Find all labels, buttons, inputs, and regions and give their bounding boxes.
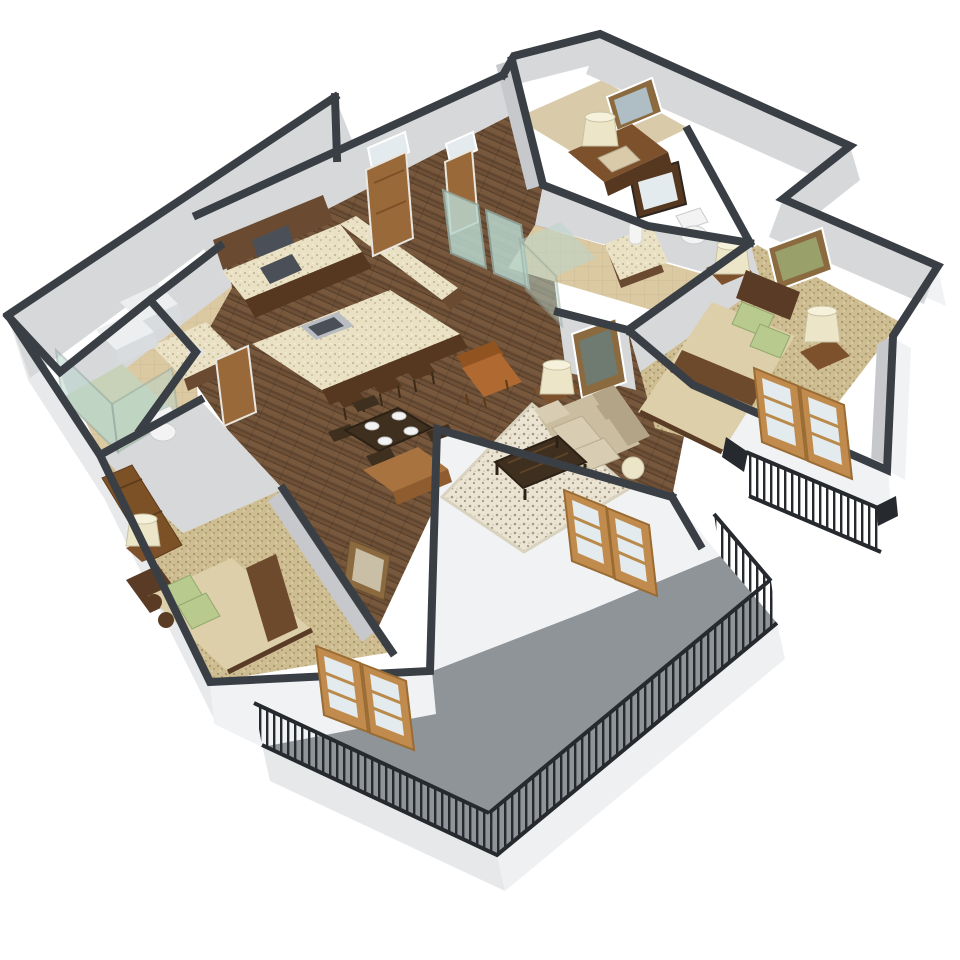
floor-plan-stage: 3D isometric floor plan rendering of a t… bbox=[0, 0, 960, 960]
accent-pillow-2 bbox=[158, 612, 174, 628]
entry-door bbox=[366, 152, 413, 256]
floor-lamp-globe bbox=[622, 457, 644, 479]
accent-pillow-1 bbox=[146, 594, 162, 610]
floor-plan-rendering: 3D isometric floor plan rendering of a t… bbox=[0, 0, 960, 960]
bathroom-door bbox=[216, 346, 256, 426]
desk-lamp bbox=[582, 112, 618, 146]
